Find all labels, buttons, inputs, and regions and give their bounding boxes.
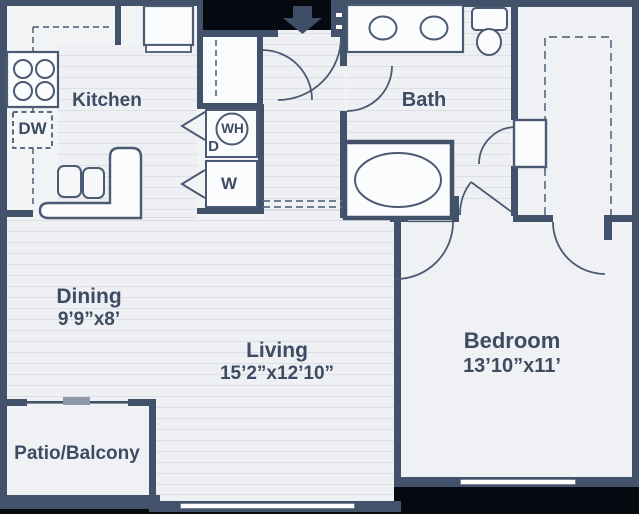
bar-sink-right <box>83 168 104 198</box>
bedroom-entry-door-swing <box>396 222 453 279</box>
bifold-door-top <box>182 112 205 140</box>
bedroom-closet-door-swing <box>553 222 605 274</box>
living-dimensions: 15’2”x12’10” <box>202 363 352 386</box>
patio-label: Patio/Balcony <box>7 443 147 466</box>
floorplan-linework <box>0 0 639 514</box>
entry-door-swing <box>278 37 341 100</box>
toilet-tank <box>472 8 507 30</box>
bath-bedroom-door-swing <box>460 182 471 215</box>
vanity <box>347 5 463 52</box>
bifold-door-bottom <box>182 170 205 198</box>
dryer-label: D <box>206 138 221 156</box>
water-heater-label: WH <box>216 121 249 137</box>
toilet-bowl <box>477 29 501 55</box>
bath-label: Bath <box>384 88 464 112</box>
dining-dimensions: 9’9”x8’ <box>39 309 139 332</box>
linen-door-swing <box>479 127 516 164</box>
refrigerator <box>144 6 193 45</box>
bedroom-label: Bedroom 13’10”x11’ <box>432 328 592 378</box>
dining-name: Dining <box>39 284 139 309</box>
bedroom-name: Bedroom <box>432 328 592 354</box>
dishwasher-label: DW <box>13 119 52 139</box>
living-name: Living <box>202 338 352 363</box>
bath-bedroom-door-leaf <box>471 182 513 213</box>
kitchen-label: Kitchen <box>57 90 157 113</box>
entry-arrow-icon <box>283 6 322 34</box>
refrigerator-door <box>146 45 191 52</box>
walkin-closet-dashed <box>545 37 611 215</box>
bedroom-dimensions: 13’10”x11’ <box>432 354 592 378</box>
entry-frame-tick <box>336 25 342 29</box>
coat-closet-door-swing <box>262 50 312 100</box>
hall-soffit-dashed <box>263 201 345 207</box>
dining-label: Dining 9’9”x8’ <box>39 284 139 332</box>
bar-sink-left <box>58 166 81 197</box>
bedroom-window <box>460 479 576 485</box>
living-window <box>180 503 355 509</box>
linen-closet <box>514 120 546 167</box>
floorplan-canvas: Kitchen Bath Dining 9’9”x8’ Living 15’2”… <box>0 0 639 514</box>
interior-walls <box>0 0 633 512</box>
outer-walls <box>0 0 639 502</box>
washer-label: W <box>220 174 238 194</box>
windows <box>27 13 576 509</box>
entry-frame-tick <box>336 13 342 17</box>
patio-sliding-door <box>63 397 90 405</box>
living-label: Living 15’2”x12’10” <box>202 338 352 386</box>
